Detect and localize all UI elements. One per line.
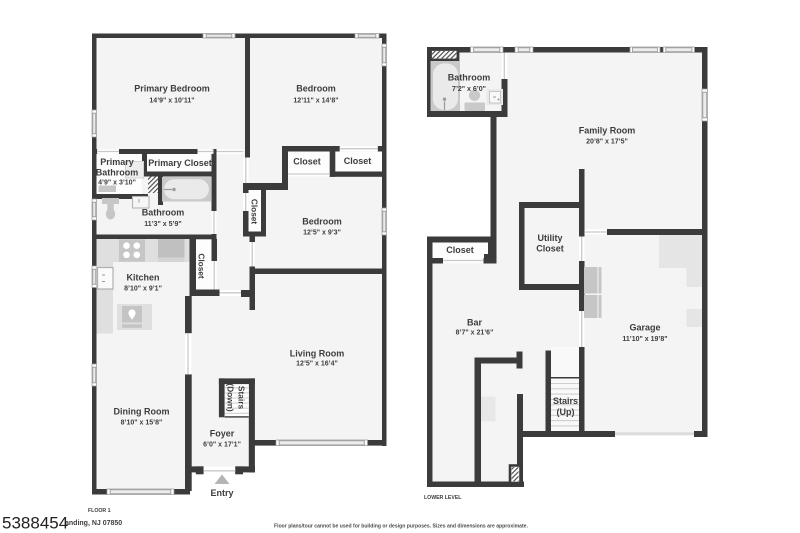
svg-text:Stairs: Stairs: [553, 396, 578, 406]
svg-text:8’10" x 9’1": 8’10" x 9’1": [124, 286, 162, 293]
svg-text:Stairs: Stairs: [237, 386, 247, 410]
svg-text:12’5" x 9’3": 12’5" x 9’3": [303, 230, 341, 237]
svg-text:Closet: Closet: [293, 157, 321, 167]
svg-text:Closet: Closet: [536, 244, 564, 254]
svg-text:LOWER LEVEL: LOWER LEVEL: [424, 495, 462, 501]
svg-text:Utility: Utility: [537, 233, 562, 243]
svg-text:Kitchen: Kitchen: [126, 273, 159, 283]
svg-text:Primary: Primary: [100, 157, 134, 167]
svg-text:Floor plans/tour cannot be use: Floor plans/tour cannot be used for buil…: [274, 523, 528, 529]
svg-text:12’11" x 14’8": 12’11" x 14’8": [293, 98, 338, 105]
svg-text:11’3" x 5’9": 11’3" x 5’9": [144, 221, 181, 228]
svg-text:12’5" x 16’4": 12’5" x 16’4": [296, 361, 338, 368]
svg-text:4’9" x 3’10": 4’9" x 3’10": [98, 180, 136, 187]
svg-text:(Down): (Down): [226, 383, 236, 412]
svg-text:Entry: Entry: [210, 488, 233, 498]
svg-text:Family Room: Family Room: [579, 126, 636, 136]
svg-text:Closet: Closet: [344, 156, 372, 166]
svg-text:Garage: Garage: [629, 323, 660, 333]
svg-text:FLOOR 1: FLOOR 1: [88, 508, 111, 514]
svg-text:Bar: Bar: [467, 318, 483, 328]
svg-text:Closet: Closet: [446, 245, 474, 255]
svg-text:Foyer: Foyer: [210, 429, 235, 439]
svg-text:7’2" x 6’0": 7’2" x 6’0": [452, 86, 486, 93]
svg-text:20’8" x 17’5": 20’8" x 17’5": [586, 139, 628, 146]
svg-text:Bedroom: Bedroom: [296, 84, 336, 94]
svg-text:6’0" x 17’1": 6’0" x 17’1": [203, 442, 241, 449]
svg-text:5388454: 5388454: [2, 514, 68, 533]
svg-text:Living Room: Living Room: [290, 349, 345, 359]
svg-text:Primary Bedroom: Primary Bedroom: [134, 84, 210, 94]
svg-text:anding, NJ 07850: anding, NJ 07850: [65, 520, 122, 527]
svg-text:Closet: Closet: [197, 253, 207, 279]
svg-text:Bathroom: Bathroom: [448, 73, 491, 83]
svg-text:Closet: Closet: [250, 199, 260, 225]
svg-text:11’10" x 19’8": 11’10" x 19’8": [622, 336, 667, 343]
svg-text:Dining Room: Dining Room: [114, 407, 170, 417]
svg-text:(Up): (Up): [557, 407, 575, 417]
svg-text:8’7" x 21’6": 8’7" x 21’6": [456, 330, 494, 337]
svg-text:Bathroom: Bathroom: [142, 208, 185, 218]
svg-text:14’9" x 10’11": 14’9" x 10’11": [149, 98, 194, 105]
svg-text:8’10" x 15’8": 8’10" x 15’8": [121, 420, 163, 427]
svg-text:Primary Closet: Primary Closet: [148, 158, 212, 168]
svg-text:Bathroom: Bathroom: [96, 168, 139, 178]
svg-text:Bedroom: Bedroom: [302, 217, 342, 227]
